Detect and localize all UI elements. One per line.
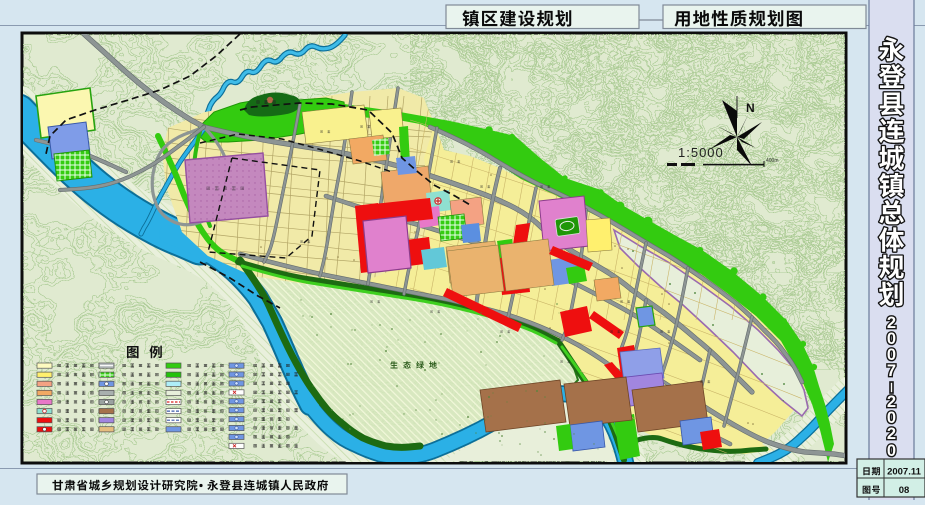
- svg-text:7: 7: [887, 362, 896, 380]
- svg-text:400m: 400m: [766, 158, 779, 164]
- svg-text:2: 2: [887, 425, 896, 443]
- svg-text:0: 0: [887, 442, 896, 460]
- svg-text:2007.11: 2007.11: [887, 467, 922, 478]
- svg-text:N: N: [746, 101, 755, 115]
- svg-text:08: 08: [899, 485, 910, 496]
- svg-text:1:5000: 1:5000: [678, 145, 724, 160]
